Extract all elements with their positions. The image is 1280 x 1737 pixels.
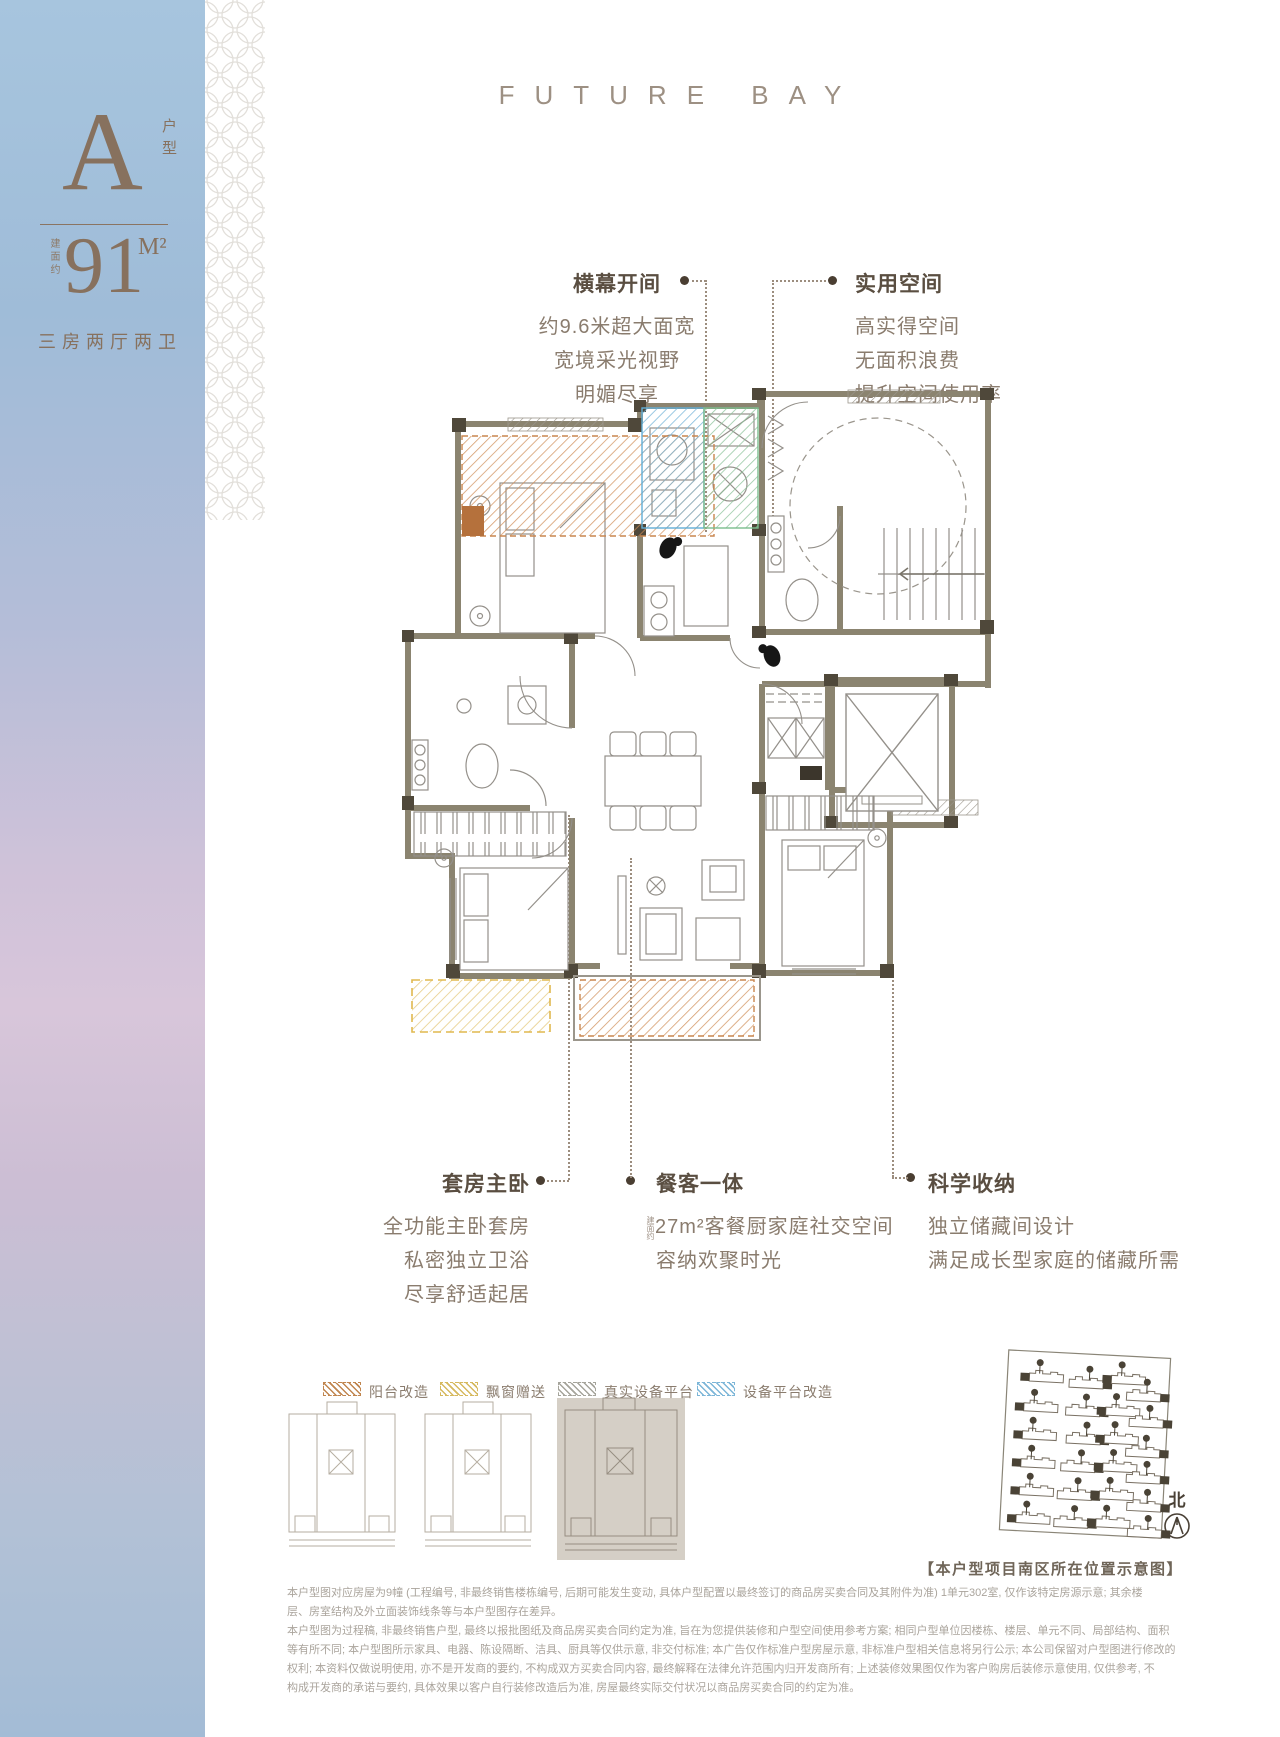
page: A 户型 建面约 91 M² 三房两厅两卫 FUTURE BAY 横幕开间 约9… bbox=[0, 0, 1280, 1737]
unit-module bbox=[289, 1402, 395, 1546]
brand-title: FUTURE BAY bbox=[440, 80, 920, 111]
disclaimer-line: 本户型图对应房屋为9幢 (工程编号, 非最终销售楼栋编号, 后期可能发生变动, … bbox=[287, 1584, 1207, 1603]
dining-set bbox=[605, 732, 701, 830]
site-plan-caption: 【本户型项目南区所在位置示意图】 bbox=[919, 1558, 1183, 1579]
legend-swatch-platform-conversion bbox=[697, 1382, 735, 1396]
balcony-wall-block bbox=[462, 506, 484, 536]
leader-line bbox=[692, 280, 706, 282]
annotation-line: 私密独立卫浴 bbox=[330, 1244, 530, 1278]
north-label: 北 bbox=[1160, 1486, 1194, 1511]
disclaimer-line: 等有所不同; 本户型图所示家具、电器、陈设隔断、洁具、厨具等仅供示意, 非交付标… bbox=[287, 1641, 1207, 1660]
annotation-line: 独立储藏间设计 bbox=[928, 1210, 1180, 1244]
legend-label: 设备平台改造 bbox=[743, 1382, 833, 1402]
legend-swatch-baywindow bbox=[440, 1382, 478, 1396]
annotation-title: 科学收纳 bbox=[928, 1168, 1180, 1198]
disclaimer-line: 层、房室结构及外立面装饰线条等与本户型图存在差异。 bbox=[287, 1603, 1207, 1622]
unit-module bbox=[425, 1402, 531, 1546]
layout-description: 三房两厅两卫 bbox=[38, 328, 182, 354]
area-prefix-tiny: 建面约 bbox=[646, 1216, 654, 1240]
annotation-line: 建面约27m²客餐厨家庭社交空间 bbox=[646, 1210, 894, 1244]
annotation-dining-living: 餐客一体 建面约27m²客餐厨家庭社交空间 容纳欢聚时光 bbox=[646, 1168, 894, 1278]
disclaimer-line: 权利; 本资料仅做说明使用, 亦不是开发商的要约, 不构成双方买卖合同内容, 最… bbox=[287, 1660, 1207, 1679]
leader-dot bbox=[828, 276, 837, 285]
annotation-title: 实用空间 bbox=[855, 268, 1002, 298]
legend-swatch-balcony bbox=[323, 1382, 361, 1396]
annotation-master-suite: 套房主卧 全功能主卧套房 私密独立卫浴 尽享舒适起居 bbox=[330, 1168, 530, 1312]
annotation-title: 套房主卧 bbox=[330, 1168, 530, 1198]
legend-swatch-real-platform bbox=[558, 1382, 596, 1396]
equipment-platform-conversion-hatch bbox=[642, 408, 704, 528]
area-unit: M² bbox=[138, 234, 167, 261]
storage-closet bbox=[766, 694, 824, 780]
disclaimer: 本户型图对应房屋为9幢 (工程编号, 非最终销售楼栋编号, 后期可能发生变动, … bbox=[287, 1584, 1207, 1698]
annotation-line: 无面积浪费 bbox=[855, 344, 1002, 378]
disclaimer-line: 本户型图为过程稿, 非最终销售户型, 最终以报批图纸及商品房买卖合同约定为准, … bbox=[287, 1622, 1207, 1641]
bedroom3-wardrobe bbox=[766, 796, 874, 830]
unit-type-label: 户型 bbox=[158, 118, 179, 162]
leader-line bbox=[772, 280, 826, 282]
area-prefix-label: 建面约 bbox=[46, 238, 61, 277]
disclaimer-line: 构成开发商的承诺与要约, 具体效果以客户自行装修改造后为准, 房屋最终实际交付状… bbox=[287, 1679, 1207, 1698]
annotation-line: 全功能主卧套房 bbox=[330, 1210, 530, 1244]
unit-letter: A bbox=[62, 96, 143, 208]
annotation-line: 高实得空间 bbox=[855, 310, 1002, 344]
balcony-conversion-hatch-bottom bbox=[580, 980, 754, 1036]
annotation-storage: 科学收纳 独立储藏间设计 满足成长型家庭的储藏所需 bbox=[928, 1168, 1180, 1278]
elevator bbox=[846, 694, 938, 811]
leader-line bbox=[892, 1177, 908, 1179]
annotation-line: 满足成长型家庭的储藏所需 bbox=[928, 1244, 1180, 1278]
sidebar-gradient-panel: A 户型 建面约 91 M² 三房两厅两卫 bbox=[0, 0, 205, 1737]
bay-window-gift-hatch bbox=[412, 980, 550, 1032]
annotation-line-text: 27m²客餐厨家庭社交空间 bbox=[655, 1216, 894, 1238]
leader-line bbox=[547, 1180, 569, 1182]
bedroom3-bed bbox=[782, 829, 886, 966]
annotation-line: 容纳欢聚时光 bbox=[656, 1244, 894, 1278]
floor-plan bbox=[400, 388, 1000, 1048]
annotation-line: 尽享舒适起居 bbox=[330, 1278, 530, 1312]
annotation-title: 餐客一体 bbox=[656, 1168, 894, 1198]
bathroom-left-furniture bbox=[412, 686, 546, 806]
living-furniture bbox=[618, 860, 744, 960]
master-wardrobe bbox=[414, 812, 566, 856]
building-floorplate-diagram bbox=[285, 1396, 687, 1564]
area-value: 91 bbox=[64, 226, 144, 306]
compass-icon bbox=[1162, 1511, 1192, 1541]
north-indicator: 北 bbox=[1160, 1486, 1194, 1546]
real-equipment-platform-hatch bbox=[704, 408, 758, 528]
bathroom-core-furniture bbox=[768, 516, 840, 621]
leader-dot bbox=[680, 276, 689, 285]
quatrefoil-pattern bbox=[205, 0, 265, 520]
leader-dot bbox=[536, 1176, 545, 1185]
